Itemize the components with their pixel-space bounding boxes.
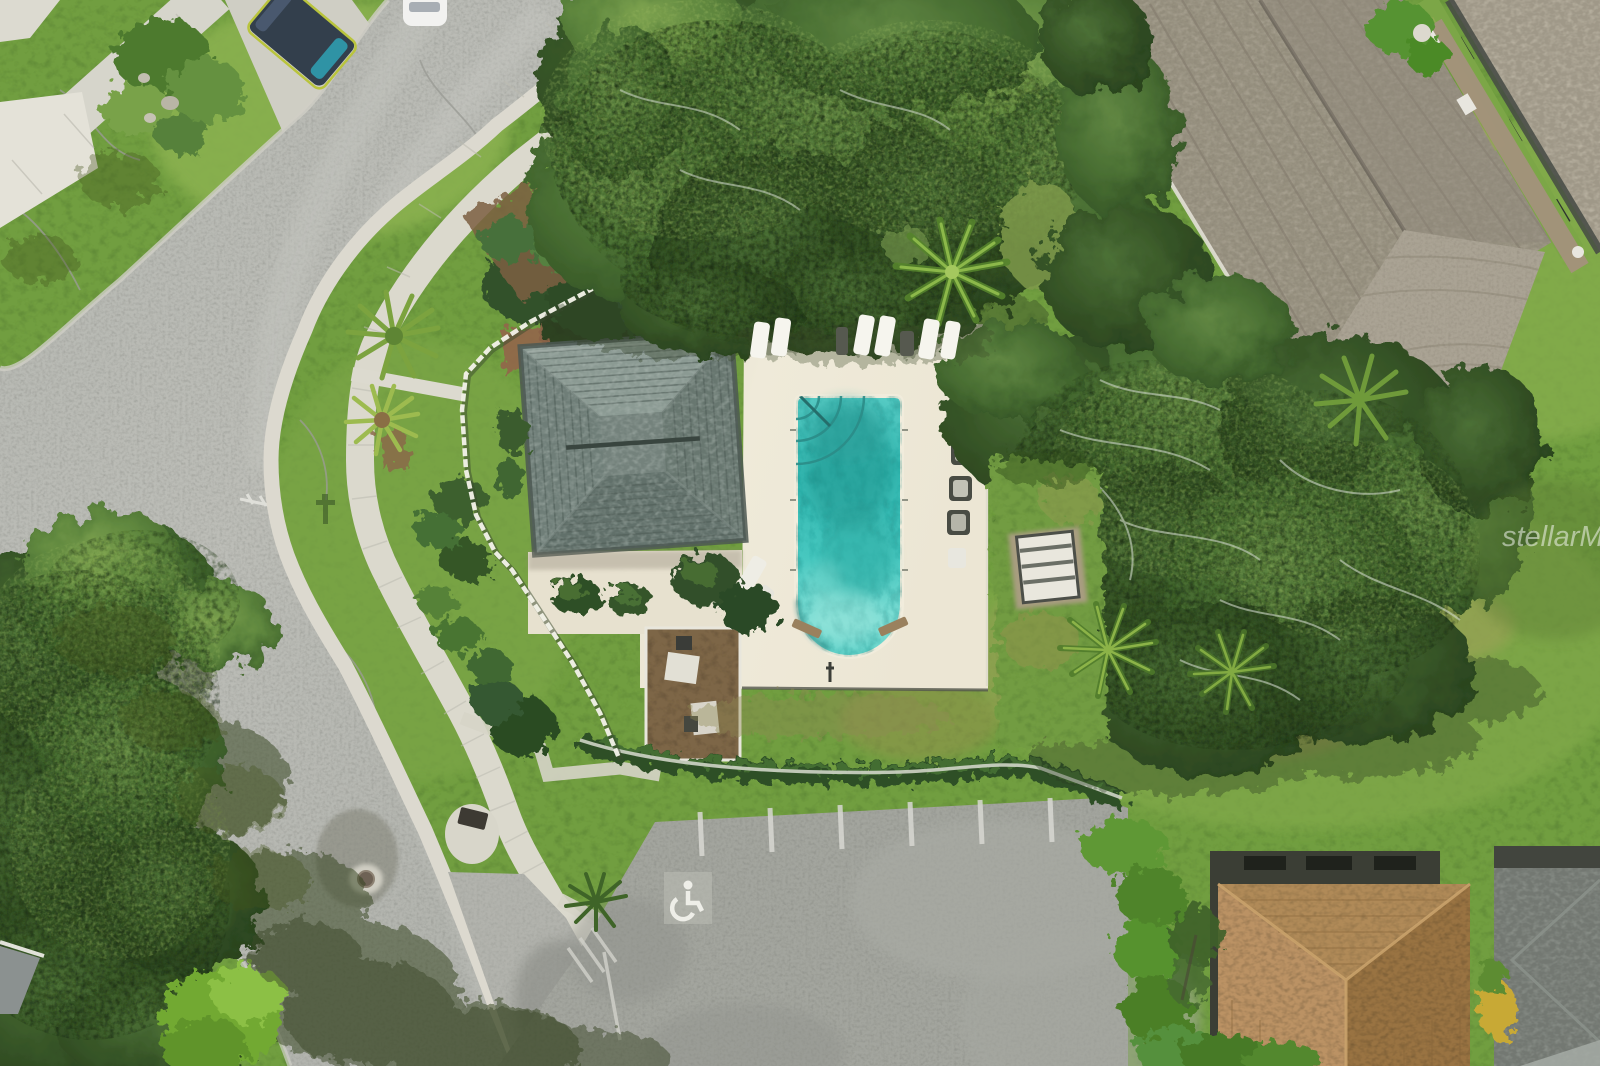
svg-text:stellarML: stellarML: [1502, 521, 1600, 553]
